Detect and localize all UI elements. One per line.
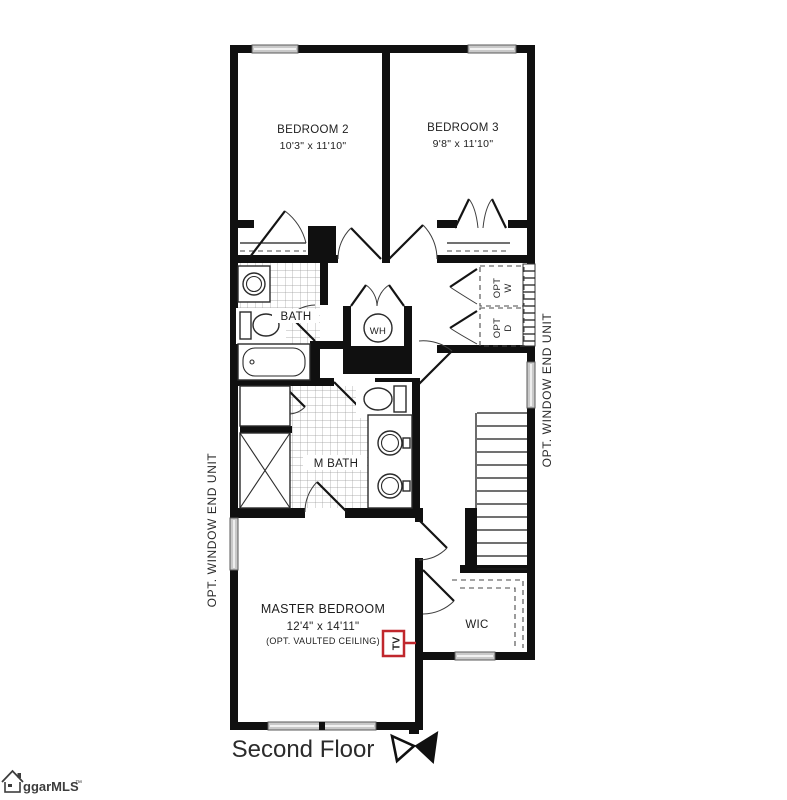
hall-stair-door [419,341,452,384]
master-bedroom-note: (OPT. VAULTED CEILING) [266,636,380,646]
wic-window [455,652,495,660]
bedroom2-label: BEDROOM 2 [277,124,349,136]
linen-closet [240,386,290,426]
bath-label: BATH [280,311,311,323]
bedroom3-closet [447,199,510,251]
floor-plan-page: BEDROOM 2 10'3" x 11'10" BEDROOM 3 9'8" … [0,0,787,800]
floor-plan-drawing: BEDROOM 2 10'3" x 11'10" BEDROOM 3 9'8" … [0,0,787,800]
master-toilet [356,382,412,418]
left-wall-window [230,518,238,570]
bedroom2-window [252,45,298,53]
bedroom2-dims: 10'3" x 11'10" [280,140,347,152]
wic-door [423,570,454,614]
tv-label: TV [390,637,402,650]
opt-washer-label-line1: OPT [492,278,503,298]
bedroom3-window [468,45,516,53]
master-bedroom-window [268,722,376,730]
mls-logo: ggarMLS ™ [2,771,82,794]
double-sink-vanity [368,415,412,508]
opt-window-right-label: OPT. WINDOW END UNIT [540,313,554,468]
bedroom2-closet [240,211,306,257]
bathtub [238,344,310,380]
bath-sink-vanity [238,266,270,302]
staircase [476,413,527,569]
right-wall-window [527,362,535,408]
opt-window-left-label: OPT. WINDOW END UNIT [205,453,219,608]
opt-washer-label-line2: W [503,283,514,292]
master-bedroom-label: MASTER BEDROOM [261,602,385,616]
water-heater-doors [351,285,404,306]
wic-shelving [452,580,523,648]
laundry-closet [450,266,524,346]
opt-dryer-label-line1: OPT [492,318,503,338]
logo-text: ggarMLS [23,779,79,794]
wic-label: WIC [465,619,488,631]
bedroom3-door [389,225,437,259]
floor-title: Second Floor [232,736,375,763]
water-heater-label: WH [370,326,386,337]
bedroom2-door [338,228,381,259]
master-bedroom-dims: 12'4" x 14'11" [287,621,360,633]
master-bath-label: M BATH [314,458,358,470]
laundry-ladder-window [523,264,535,346]
bedroom3-dims: 9'8" x 11'10" [433,138,494,150]
house-icon [2,771,23,792]
shower [240,433,290,508]
bedroom3-label: BEDROOM 3 [427,122,499,134]
opt-dryer-label-line2: D [503,324,514,331]
north-arrow-icon [392,729,437,762]
logo-trademark: ™ [75,780,82,787]
tv-marker: TV [383,631,416,656]
master-bedroom-door [419,520,447,560]
